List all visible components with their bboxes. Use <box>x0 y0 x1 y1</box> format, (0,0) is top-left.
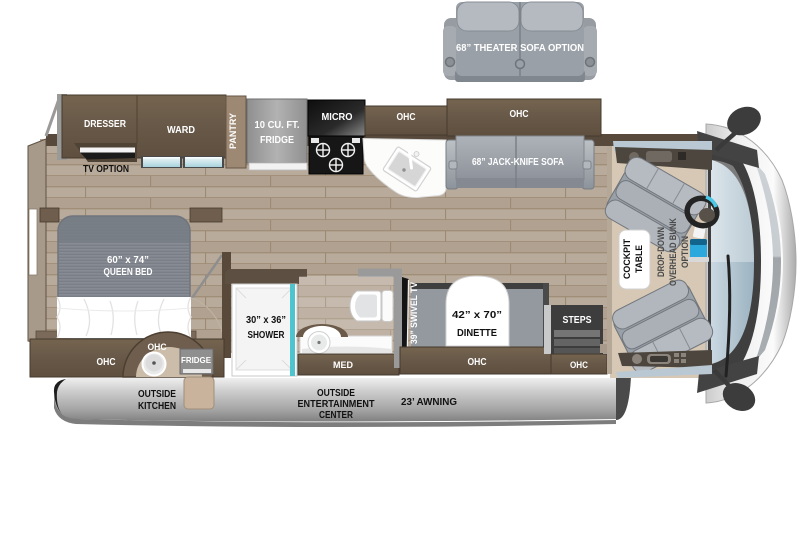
svg-text:PANTRY: PANTRY <box>228 112 239 149</box>
svg-text:SHOWER: SHOWER <box>248 330 286 341</box>
svg-text:10 CU. FT.: 10 CU. FT. <box>255 120 300 131</box>
svg-text:ENTERTAINMENT: ENTERTAINMENT <box>298 399 375 410</box>
svg-text:68” JACK-KNIFE SOFA: 68” JACK-KNIFE SOFA <box>472 157 564 168</box>
svg-text:OHC: OHC <box>468 357 487 368</box>
svg-text:60” x 74”: 60” x 74” <box>107 255 149 266</box>
svg-text:68” THEATER SOFA OPTION: 68” THEATER SOFA OPTION <box>456 43 584 54</box>
svg-text:23’ AWNING: 23’ AWNING <box>401 397 457 408</box>
svg-text:DINETTE: DINETTE <box>457 328 497 339</box>
svg-text:30” x 36”: 30” x 36” <box>246 315 286 326</box>
svg-text:MICRO: MICRO <box>322 112 353 123</box>
svg-text:MED: MED <box>333 360 353 371</box>
svg-text:TV OPTION: TV OPTION <box>83 164 129 175</box>
svg-text:OHC: OHC <box>510 109 529 120</box>
svg-text:OPTION: OPTION <box>680 236 690 268</box>
svg-text:OHC: OHC <box>148 342 167 353</box>
svg-text:DROP-DOWN: DROP-DOWN <box>656 227 666 277</box>
svg-text:QUEEN BED: QUEEN BED <box>104 267 153 278</box>
svg-text:OHC: OHC <box>570 360 588 371</box>
svg-text:WARD: WARD <box>167 125 195 136</box>
svg-text:COCKPIT: COCKPIT <box>622 239 633 279</box>
svg-text:DRESSER: DRESSER <box>84 119 127 130</box>
svg-text:KITCHEN: KITCHEN <box>138 401 176 412</box>
svg-text:FRIDGE: FRIDGE <box>260 135 294 146</box>
svg-text:OHC: OHC <box>97 357 116 368</box>
svg-text:CENTER: CENTER <box>319 410 354 421</box>
svg-text:OUTSIDE: OUTSIDE <box>138 389 176 400</box>
svg-text:OVERHEAD BUNK: OVERHEAD BUNK <box>668 218 678 286</box>
svg-text:OHC: OHC <box>397 112 416 123</box>
svg-text:FRIDGE: FRIDGE <box>181 355 211 365</box>
svg-text:OUTSIDE: OUTSIDE <box>317 388 355 399</box>
svg-text:42” x 70”: 42” x 70” <box>452 310 502 321</box>
svg-text:STEPS: STEPS <box>563 314 592 326</box>
svg-text:TABLE: TABLE <box>634 245 645 273</box>
svg-text:39” SWIVEL TV: 39” SWIVEL TV <box>409 281 420 344</box>
